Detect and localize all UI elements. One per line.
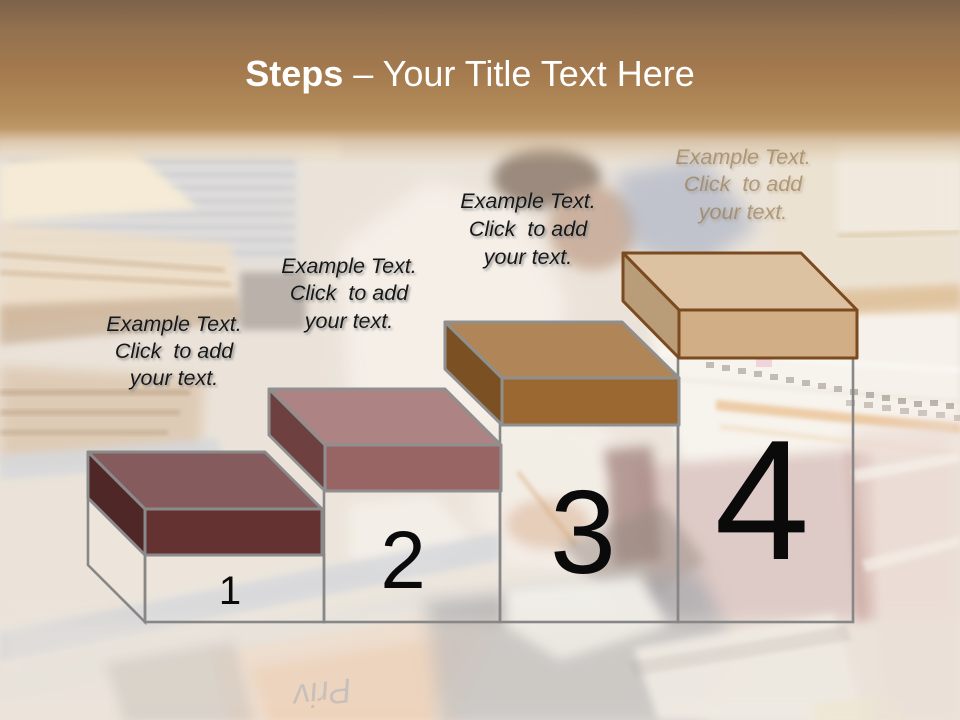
svg-text:Example Text.: Example Text. <box>675 145 810 169</box>
svg-text:Click to add: Click to add <box>290 281 409 305</box>
svg-text:3: 3 <box>550 466 616 599</box>
svg-text:Click to add: Click to add <box>684 172 803 196</box>
svg-text:your text.: your text. <box>697 200 787 224</box>
svg-text:2: 2 <box>380 515 425 606</box>
svg-text:1: 1 <box>219 569 241 613</box>
svg-text:your text.: your text. <box>303 309 393 333</box>
svg-text:Example Text.: Example Text. <box>106 312 241 336</box>
svg-text:Click to add: Click to add <box>469 217 588 241</box>
svg-text:4: 4 <box>714 405 809 596</box>
svg-text:Click to add: Click to add <box>115 339 234 363</box>
svg-text:Example Text.: Example Text. <box>460 189 595 213</box>
svg-text:your text.: your text. <box>482 245 572 269</box>
svg-text:your text.: your text. <box>128 366 218 390</box>
svg-text:Steps – Your Title Text Here: Steps – Your Title Text Here <box>245 53 695 94</box>
svg-text:Example Text.: Example Text. <box>281 254 416 278</box>
